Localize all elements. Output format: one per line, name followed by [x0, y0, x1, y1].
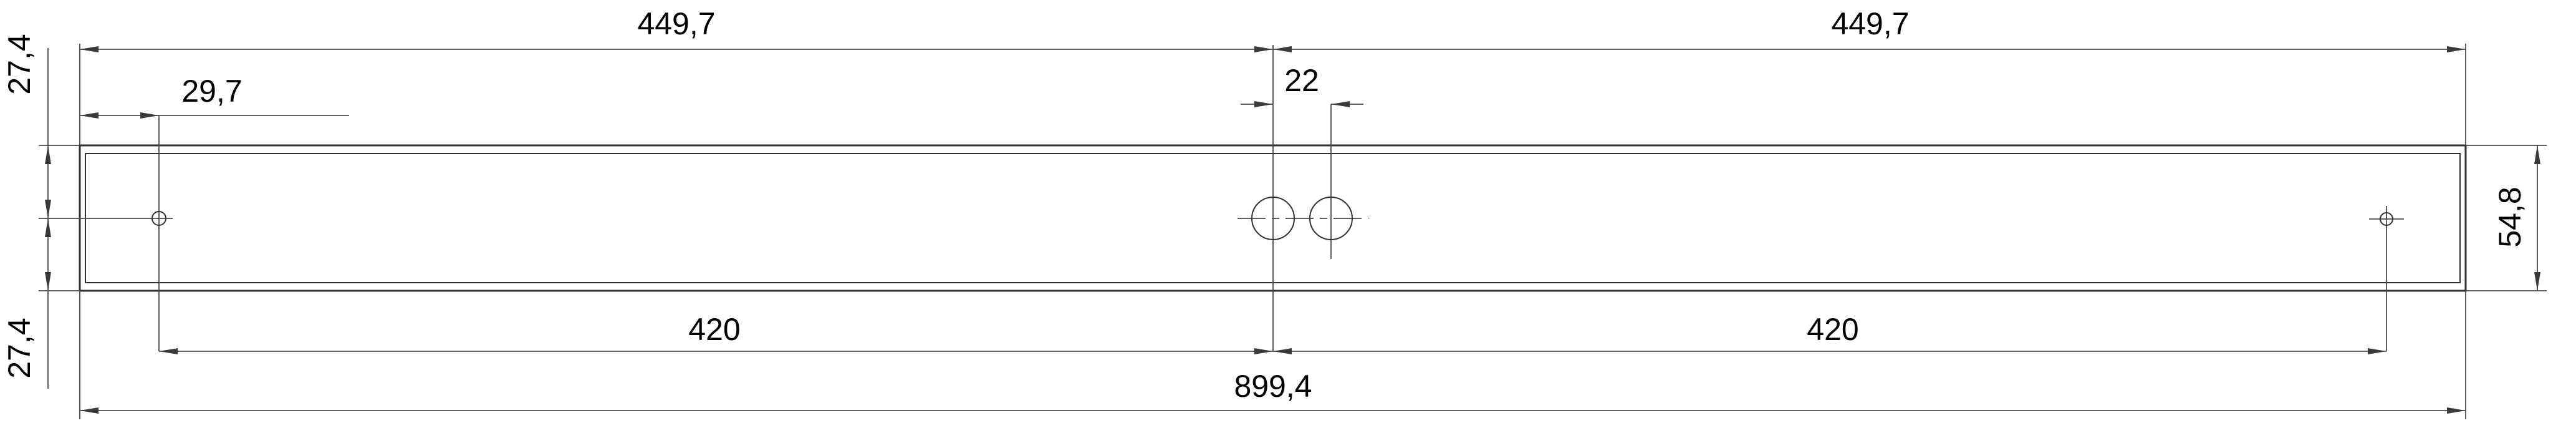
arrow-27top-up — [45, 145, 51, 164]
label-profile-height: 54,8 — [2492, 187, 2527, 247]
label-left-hole-offset: 29,7 — [181, 74, 242, 109]
label-top-left-span: 449,7 — [637, 6, 715, 41]
arrow-420L-right — [1254, 348, 1273, 354]
technical-drawing-page: 449,7 449,7 29,7 22 420 420 899,4 27,4 2… — [0, 0, 2576, 443]
label-left-offset-bottom: 27,4 — [2, 318, 37, 378]
label-left-offset-top: 27,4 — [2, 34, 37, 94]
arrow-449L-left — [80, 46, 99, 52]
technical-drawing-canvas: 449,7 449,7 29,7 22 420 420 899,4 27,4 2… — [0, 0, 2576, 443]
arrow-899-right — [2447, 407, 2466, 414]
arrow-899-left — [80, 407, 99, 414]
arrow-420R-right — [2368, 348, 2386, 354]
extension-lines — [39, 44, 2547, 419]
arrow-27bot-up — [45, 218, 51, 237]
arrow-22-left — [1254, 101, 1273, 107]
dimension-arrowheads — [45, 46, 2540, 414]
dimension-lines — [80, 49, 2537, 411]
arrow-449R-right — [2447, 46, 2466, 52]
arrow-54-8-up — [2534, 145, 2540, 164]
label-top-right-span: 449,7 — [1831, 6, 1909, 41]
arrow-449L-right — [1254, 46, 1273, 52]
label-center-hole-spacing: 22 — [1284, 63, 1319, 98]
label-bottom-right-span: 420 — [1807, 312, 1858, 347]
arrow-29-7-right — [140, 112, 159, 119]
arrow-22-right — [1331, 101, 1350, 107]
label-bottom-left-span: 420 — [688, 312, 740, 347]
label-overall-length: 899,4 — [1234, 369, 1312, 404]
arrow-449R-left — [1273, 46, 1292, 52]
arrow-420R-left — [1273, 348, 1292, 354]
arrow-420L-left — [159, 348, 178, 354]
dimension-labels: 449,7 449,7 29,7 22 420 420 899,4 27,4 2… — [2, 6, 2527, 404]
arrow-54-8-down — [2534, 272, 2540, 291]
arrow-27bot-down — [45, 272, 51, 291]
arrow-29-7-left — [80, 112, 99, 119]
arrow-27top-down — [45, 200, 51, 218]
